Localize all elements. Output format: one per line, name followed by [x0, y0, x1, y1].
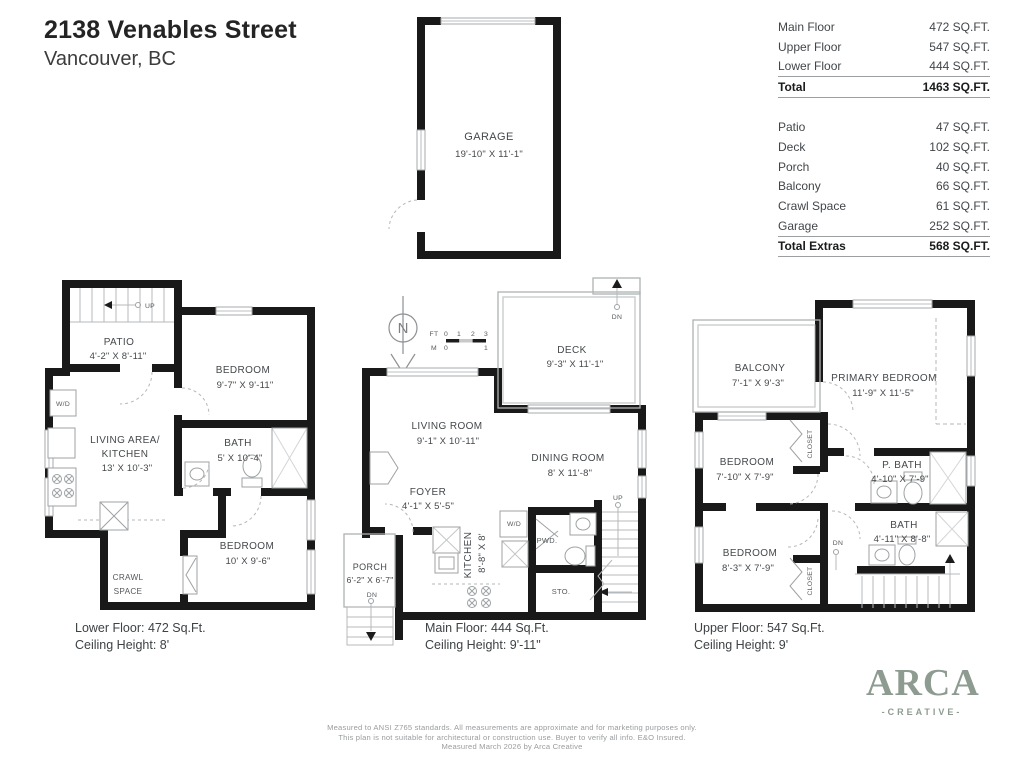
north-indicator: N — [389, 296, 417, 373]
bath-dims: 5' X 10'-4" — [217, 453, 262, 464]
upper-floor-caption: Upper Floor: 547 Sq.Ft. Ceiling Height: … — [694, 620, 825, 653]
scale-ft-label: FT — [430, 331, 439, 338]
entry-door-icon — [370, 452, 398, 484]
disclaimer-text: Measured to ANSI Z765 standards. All mea… — [0, 723, 1024, 752]
scale-tick: 0 — [444, 331, 448, 338]
floor-plan-page: 2138 Venables Street Vancouver, BC Main … — [0, 0, 1024, 768]
living-kitchen-label: LIVING AREA/ — [90, 435, 160, 446]
washer-dryer-label: W/D — [507, 521, 521, 528]
deck-dims: 9'-3" X 11'-1" — [547, 359, 604, 370]
balcony-dims: 7'-1" X 9'-3" — [732, 378, 784, 389]
caption-area: Main Floor: 444 Sq.Ft. — [425, 620, 549, 637]
bedroom-label: BEDROOM — [723, 548, 777, 559]
living-kitchen-label2: KITCHEN — [102, 449, 149, 460]
dining-room-label: DINING ROOM — [531, 453, 604, 464]
balcony-label: BALCONY — [735, 363, 786, 374]
kitchen-label: KITCHEN — [463, 532, 474, 579]
primary-bedroom-dims: 11'-9" X 11'-5" — [852, 388, 914, 399]
patio-dims: 4'-2" X 8'-11" — [90, 351, 147, 362]
stairs-icon — [834, 550, 961, 609]
caption-ceiling: Ceiling Height: 9'-11" — [425, 637, 549, 654]
dn-label: DN — [612, 314, 622, 321]
bath-dims: 4'-11" X 8'-8" — [874, 534, 931, 545]
caption-area: Upper Floor: 547 Sq.Ft. — [694, 620, 825, 637]
lower-floor-caption: Lower Floor: 472 Sq.Ft. Ceiling Height: … — [75, 620, 206, 653]
scale-tick: 3 — [484, 331, 488, 338]
up-label: UP — [613, 495, 623, 502]
closet-label: CLOSET — [807, 567, 814, 596]
closet-label: CLOSET — [807, 430, 814, 459]
scale-tick: 1 — [457, 331, 461, 338]
bath-label: BATH — [224, 438, 252, 449]
living-room-label: LIVING ROOM — [411, 421, 482, 432]
storage-label: STO. — [552, 587, 571, 596]
primary-bath-dims: 4'-10" X 7'-9" — [871, 474, 929, 485]
living-room-dims: 9'-1" X 10'-11" — [417, 436, 479, 447]
patio-label: PATIO — [104, 337, 135, 348]
powder-room-label: PWD. — [537, 536, 558, 545]
bedroom-dims: 9'-7" X 9'-11" — [217, 380, 274, 391]
scale-tick: 1 — [484, 345, 488, 352]
door-swing-arc — [389, 200, 417, 229]
bedroom-dims: 8'-3" X 7'-9" — [722, 563, 774, 574]
dn-label: DN — [833, 540, 843, 547]
deck-outline — [498, 278, 640, 408]
porch-dims: 6'-2" X 6'-7" — [347, 575, 394, 585]
scale-bar: FT 0 1 2 3 M 0 1 — [430, 331, 489, 352]
crawl-space-label: CRAWL — [113, 573, 144, 582]
primary-bath-label: P. BATH — [882, 460, 922, 471]
living-kitchen-dims: 13' X 10'-3" — [102, 463, 153, 474]
upper-floor-plan: DN BALCONY 7'-1" X 9'-3" PRIMARY BEDROOM… — [693, 300, 975, 612]
caption-ceiling: Ceiling Height: 8' — [75, 637, 206, 654]
arca-creative-logo: ARCA -CREATIVE- — [866, 662, 978, 717]
bedroom-dims: 7'-10" X 7'-9" — [716, 472, 774, 483]
caption-area: Lower Floor: 472 Sq.Ft. — [75, 620, 206, 637]
scale-m-label: M — [431, 345, 437, 352]
disclaimer-line: This plan is not suitable for architectu… — [0, 733, 1024, 743]
washer-dryer-label: W/D — [56, 401, 70, 408]
scale-tick: 0 — [444, 345, 448, 352]
porch-outline — [344, 534, 395, 645]
main-floor-caption: Main Floor: 444 Sq.Ft. Ceiling Height: 9… — [425, 620, 549, 653]
dn-label: DN — [367, 592, 377, 599]
logo-tagline: -CREATIVE- — [866, 707, 978, 717]
disclaimer-line: Measured to ANSI Z765 standards. All mea… — [0, 723, 1024, 733]
garage-plan: GARAGE 19'-10" X 11'-1" — [389, 17, 561, 259]
caption-ceiling: Ceiling Height: 9' — [694, 637, 825, 654]
garage-label: GARAGE — [464, 131, 513, 143]
garage-dims: 19'-10" X 11'-1" — [455, 149, 523, 160]
primary-bedroom-label: PRIMARY BEDROOM — [831, 373, 937, 384]
scale-tick: 2 — [471, 331, 475, 338]
deck-label: DECK — [557, 345, 586, 356]
scale-segment — [459, 339, 472, 343]
ceiling-break-line — [936, 318, 966, 424]
bath-label: BATH — [890, 520, 918, 531]
main-floor-plan: DN DN — [344, 278, 646, 645]
dining-room-dims: 8' X 11'-8" — [548, 468, 592, 479]
bedroom-dims: 10' X 9'-6" — [225, 556, 270, 567]
foyer-dims: 4'-1" X 5'-5" — [402, 501, 454, 512]
disclaimer-line: Measured March 2026 by Arca Creative — [0, 742, 1024, 752]
stairs-icon — [70, 288, 174, 322]
north-letter: N — [398, 320, 409, 337]
kitchen-dims: 8'-8" X 8' — [477, 533, 488, 573]
crawl-access-door — [183, 556, 197, 594]
crawl-space-label2: SPACE — [114, 587, 143, 596]
scale-segment — [473, 339, 486, 343]
up-label: UP — [145, 303, 155, 310]
scale-segment — [446, 339, 459, 343]
foyer-label: FOYER — [410, 487, 446, 498]
lower-floor-plan: UP W/D — [45, 280, 315, 610]
bedroom-label: BEDROOM — [216, 365, 270, 376]
porch-label: PORCH — [353, 562, 388, 572]
logo-wordmark: ARCA — [866, 662, 978, 704]
bedroom-label: BEDROOM — [220, 541, 274, 552]
bedroom-label: BEDROOM — [720, 457, 774, 468]
